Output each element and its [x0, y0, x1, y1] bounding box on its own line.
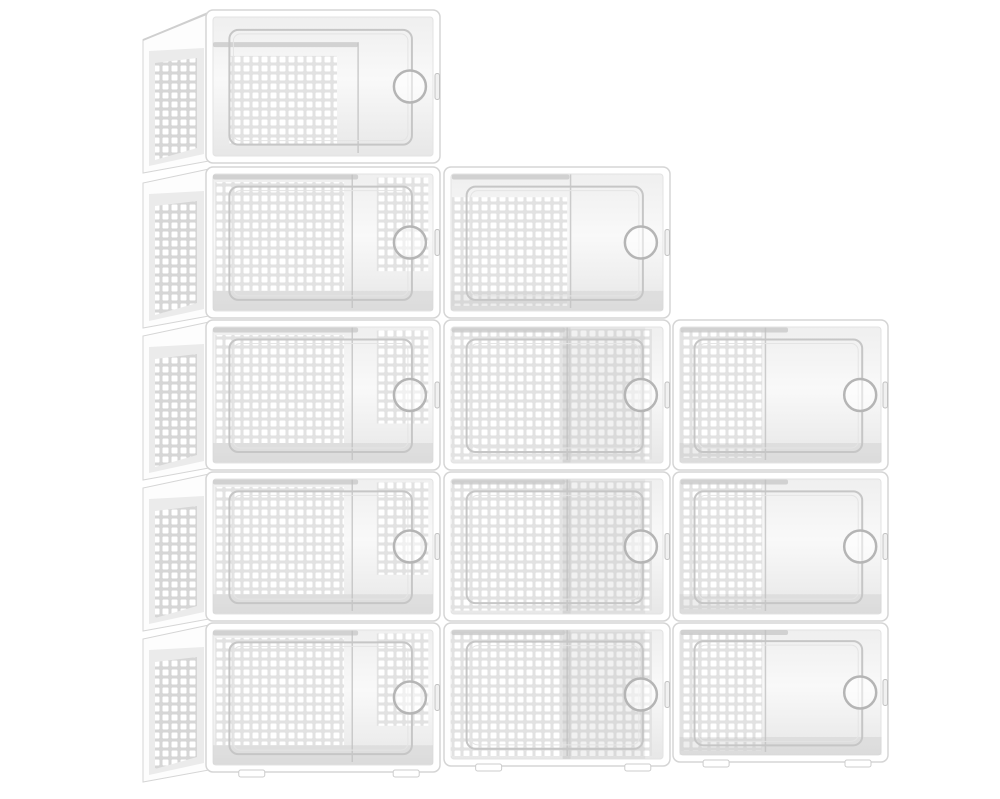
shoe-box-col1-row2 — [444, 320, 670, 470]
shoe-box-col0-row1 — [143, 167, 440, 328]
shoe-storage-scene — [0, 0, 1000, 799]
shoe-box-col2-row2 — [673, 320, 888, 470]
perforated-panel — [215, 335, 344, 443]
shoe-box-col1-row3 — [444, 472, 670, 621]
shoe-box-col0-row2 — [143, 320, 440, 480]
foot-tab — [625, 764, 651, 771]
back-top-edge — [452, 630, 565, 635]
shoe-box-col0-row0 — [143, 10, 440, 173]
door-latch — [883, 680, 888, 706]
perforated-panel — [215, 487, 344, 594]
perforated-panel — [681, 482, 763, 609]
perforated-panel — [215, 182, 344, 291]
door-handle — [844, 677, 876, 709]
door-latch — [435, 230, 440, 256]
door-latch — [435, 685, 440, 711]
door-handle — [625, 379, 657, 411]
foot-tab — [845, 760, 871, 767]
door-handle — [625, 531, 657, 563]
door-handle — [394, 682, 426, 714]
back-top-edge — [213, 479, 358, 484]
door-handle — [394, 379, 426, 411]
back-top-edge — [452, 175, 570, 180]
door-latch — [883, 382, 888, 408]
foot-tab — [239, 770, 265, 777]
door-latch — [665, 382, 670, 408]
back-top-edge — [681, 479, 789, 484]
product-photo-shoe-boxes — [0, 0, 1000, 799]
door-latch — [665, 682, 670, 708]
foot-tab — [476, 764, 502, 771]
shoe-box-col1-row4 — [444, 623, 670, 771]
back-top-edge — [213, 630, 358, 635]
shoe-box-col0-row4 — [143, 623, 440, 782]
door-latch — [435, 74, 440, 100]
door-latch — [435, 534, 440, 560]
shoe-box-col1-row1 — [444, 167, 670, 318]
back-top-edge — [452, 479, 565, 484]
door-latch — [665, 230, 670, 256]
side-perforation — [155, 506, 197, 618]
side-perforation — [155, 58, 197, 160]
back-top-edge — [213, 42, 358, 47]
foot-tab — [393, 770, 419, 777]
door-latch — [435, 382, 440, 408]
shoe-box-col0-row3 — [143, 472, 440, 631]
perforated-panel — [681, 331, 763, 459]
door-handle — [625, 227, 657, 259]
back-top-edge — [213, 175, 358, 180]
shoe-box-col2-row3 — [673, 472, 888, 621]
shoe-box-col2-row4 — [673, 623, 888, 767]
door-handle — [394, 227, 426, 259]
door-handle — [625, 679, 657, 711]
back-top-edge — [681, 328, 789, 333]
door-handle — [394, 531, 426, 563]
perforated-panel — [452, 197, 567, 306]
door-handle — [844, 379, 876, 411]
back-top-edge — [681, 630, 789, 635]
side-perforation — [155, 657, 197, 769]
door-latch — [883, 534, 888, 560]
door-handle — [844, 531, 876, 563]
door-handle — [394, 71, 426, 103]
side-perforation — [155, 354, 197, 467]
side-perforation — [155, 201, 197, 315]
perforated-panel — [229, 56, 337, 145]
back-top-edge — [213, 328, 358, 333]
foot-tab — [703, 760, 729, 767]
perforated-panel — [681, 633, 763, 751]
perforated-panel — [215, 638, 344, 745]
door-latch — [665, 534, 670, 560]
back-top-edge — [452, 328, 565, 333]
